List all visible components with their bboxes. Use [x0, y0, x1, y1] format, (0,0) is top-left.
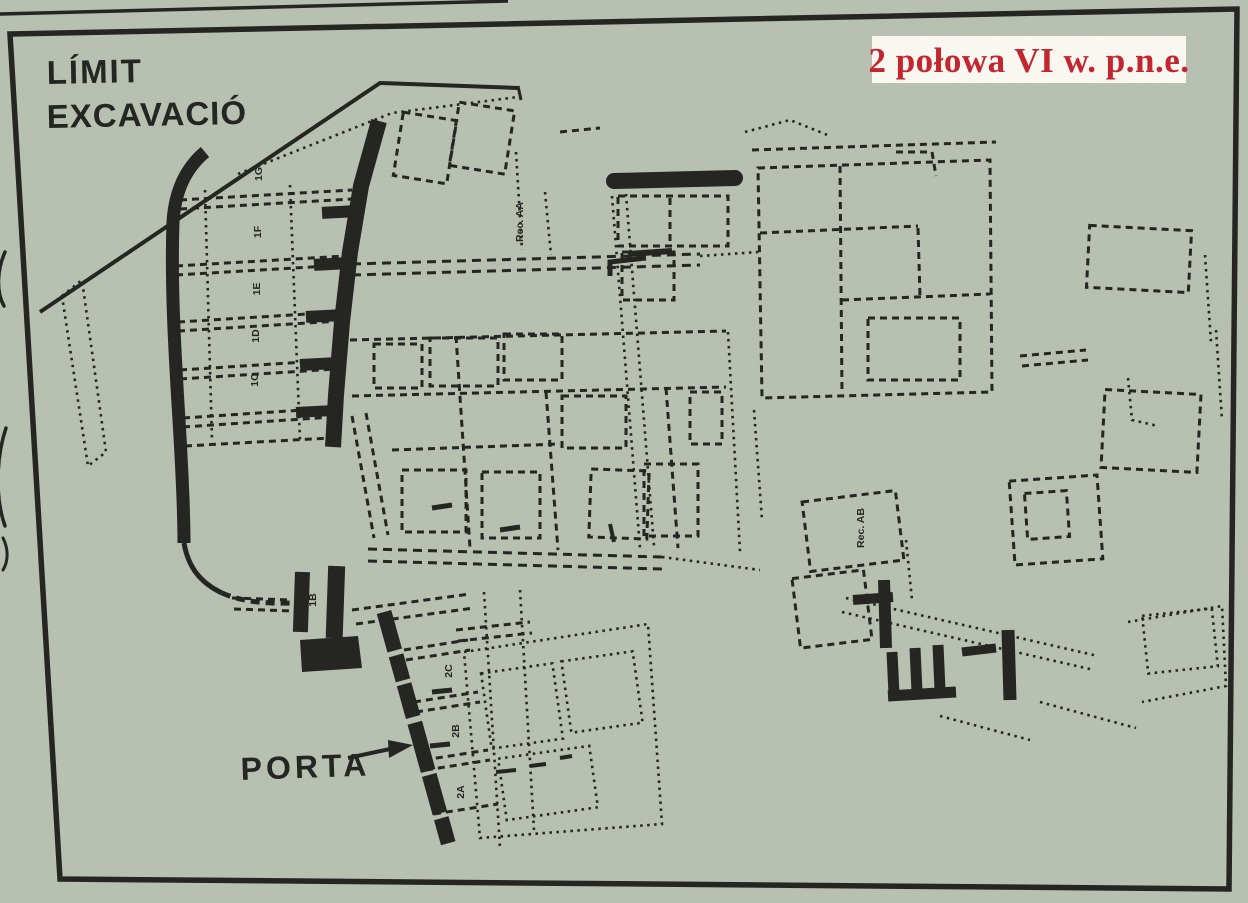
site-plan: LÍMIT EXCAVACIÓ 1G 1F 1E 1D 1C	[0, 0, 1248, 903]
scanned-page: LÍMIT EXCAVACIÓ 1G 1F 1E 1D 1C	[0, 0, 1248, 903]
paper-grain	[0, 0, 1248, 903]
